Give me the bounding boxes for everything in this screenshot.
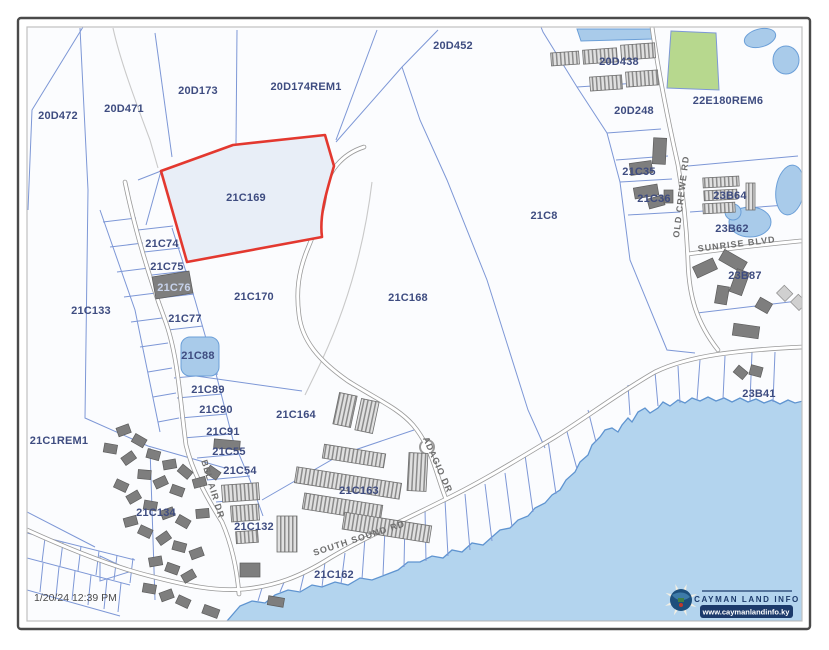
parcel-label-21c90: 21C90 — [199, 404, 232, 416]
parcel-label-21c170: 21C170 — [234, 291, 274, 303]
parcel-label-21c89: 21C89 — [191, 384, 224, 396]
parcel-label-21c133: 21C133 — [71, 305, 111, 317]
parcel-label-21c35: 21C35 — [622, 166, 655, 178]
parcel-label-20d438: 20D438 — [599, 56, 639, 68]
parcel-label-21c164: 21C164 — [276, 409, 316, 421]
parcel-label-21c163: 21C163 — [339, 485, 379, 497]
parcel-label-21c132: 21C132 — [234, 521, 274, 533]
parcel-label-21c74: 21C74 — [145, 238, 179, 250]
parcel-label-21c55: 21C55 — [212, 446, 245, 458]
logo-url[interactable]: www.caymanlandinfo.ky — [702, 608, 791, 617]
parcel-label-23b41: 23B41 — [742, 388, 775, 400]
parcel-label-20d174rem1: 20D174REM1 — [270, 81, 341, 93]
map-window: 20D47220D47120D17320D174REM120D45220D438… — [0, 0, 829, 650]
parcel-label-20d173: 20D173 — [178, 85, 218, 97]
parcel-label-20d452: 20D452 — [433, 40, 473, 52]
parcel-label-21c168: 21C168 — [388, 292, 428, 304]
parcel-label-20d248: 20D248 — [614, 105, 654, 117]
logo-title: CAYMAN LAND INFO — [694, 595, 800, 604]
parcel-label-23b64: 23B64 — [713, 190, 747, 202]
parcel-label-21c134: 21C134 — [136, 507, 176, 519]
parcel-label-21c77: 21C77 — [168, 313, 201, 325]
parcel-label-22e180rem6: 22E180REM6 — [693, 95, 764, 107]
parcel-label-21c76: 21C76 — [157, 282, 190, 294]
parcel-label-20d471: 20D471 — [104, 103, 144, 115]
parcel-label-21c91: 21C91 — [206, 426, 239, 438]
parcel-label-21c75: 21C75 — [150, 261, 183, 273]
parcel-label-21c169: 21C169 — [226, 192, 266, 204]
parcel-label-20d472: 20D472 — [38, 110, 78, 122]
parcel-label-21c54: 21C54 — [223, 465, 257, 477]
parcel-label-23b62: 23B62 — [715, 223, 748, 235]
map-canvas[interactable]: 20D47220D47120D17320D174REM120D45220D438… — [0, 0, 829, 650]
timestamp: 1/20/24 12:39 PM — [34, 592, 117, 604]
green-parcel-22E180[interactable] — [667, 31, 719, 90]
parcel-label-23b87: 23B87 — [728, 270, 761, 282]
parcel-label-21c36: 21C36 — [637, 193, 670, 205]
parcel-label-21c88: 21C88 — [181, 350, 214, 362]
parcel-label-21c162: 21C162 — [314, 569, 354, 581]
parcel-label-21c1rem1: 21C1REM1 — [30, 435, 88, 447]
parcel-label-21c8: 21C8 — [530, 210, 557, 222]
